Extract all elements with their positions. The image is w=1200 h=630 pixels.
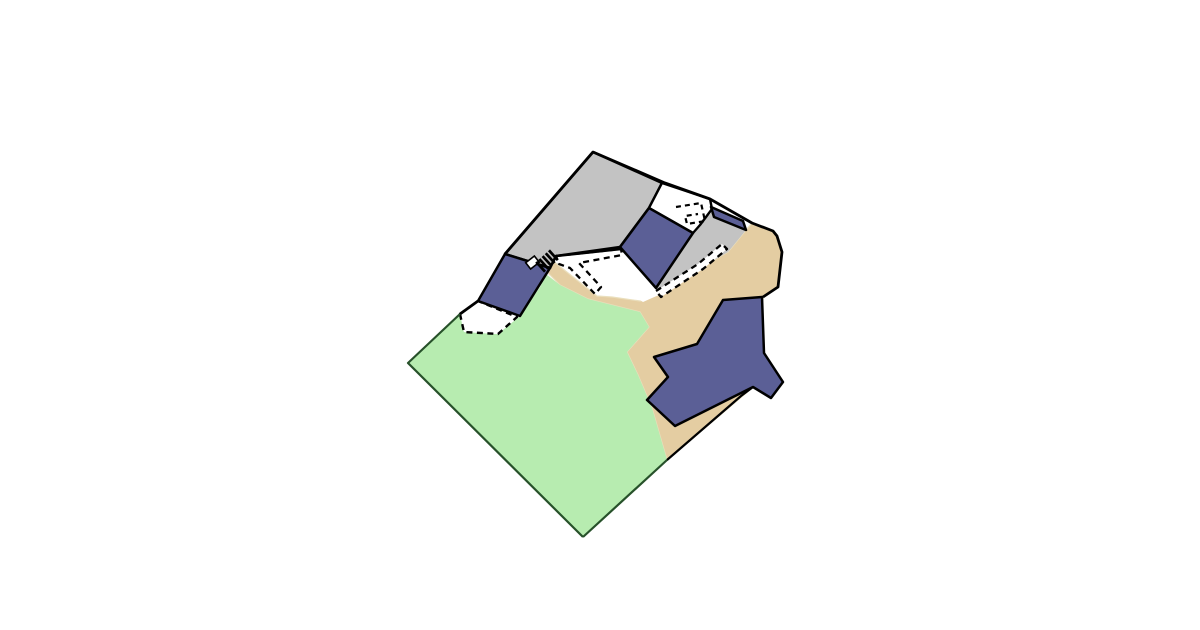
grass-area	[408, 274, 667, 537]
cadastral-map	[0, 0, 1200, 630]
site-plan-svg	[0, 0, 1200, 630]
